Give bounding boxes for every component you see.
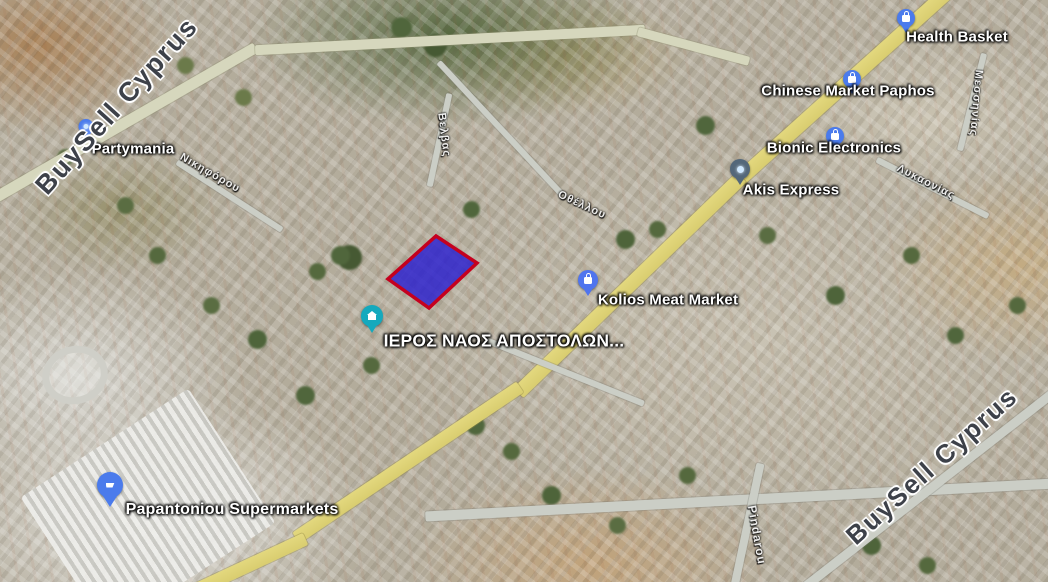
- street-label: Λυκαονίας: [895, 162, 957, 202]
- poi-label-church[interactable]: ΙΕΡΟΣ ΝΑΟΣ ΑΠΟΣΤΟΛΩΝ...: [384, 331, 625, 352]
- road: [175, 159, 283, 232]
- satellite-map[interactable]: Partymania Health Basket Chinese Market …: [0, 0, 1048, 582]
- road: [292, 382, 523, 544]
- buysell-watermark-bottom-right: BuySell Cyprus: [840, 381, 1024, 551]
- road: [637, 27, 750, 65]
- road: [176, 533, 308, 582]
- street-label: Οθέλλου: [556, 189, 608, 222]
- poi-label-akis-express[interactable]: Akis Express: [743, 182, 840, 199]
- church-icon: [361, 305, 383, 327]
- pin-dot-icon: [730, 159, 750, 179]
- partymania-pin[interactable]: [79, 119, 94, 140]
- round-structure: [36, 338, 115, 411]
- kolios-meat-market-pin[interactable]: [578, 270, 598, 296]
- poi-label-health-basket[interactable]: Health Basket: [906, 29, 1008, 46]
- road: [0, 43, 258, 213]
- road: [799, 382, 1048, 582]
- buysell-watermark-top-left: BuySell Cyprus: [29, 11, 204, 201]
- poi-label-kolios-meat-market[interactable]: Kolios Meat Market: [598, 292, 738, 309]
- shopping-bag-icon: [578, 270, 598, 290]
- street-label: Μεσσηνίας: [967, 69, 985, 137]
- road: [514, 172, 747, 397]
- street-label: Νικηφόρου: [178, 151, 242, 195]
- street-label-pindarou: Pindarou: [745, 504, 769, 566]
- poi-label-papantoniou[interactable]: Papantoniou Supermarkets: [126, 501, 339, 519]
- street-label: Βελβας: [435, 112, 452, 158]
- poi-label-bionic-electronics[interactable]: Bionic Electronics: [767, 140, 901, 157]
- road: [255, 25, 645, 55]
- tree-blobs: [0, 0, 11, 11]
- highlighted-plot: [380, 228, 490, 316]
- shopping-cart-icon: [97, 472, 123, 498]
- road: [425, 479, 1048, 522]
- road: [436, 60, 563, 196]
- supermarket-roof: [21, 388, 276, 582]
- poi-label-chinese-market[interactable]: Chinese Market Paphos: [761, 83, 934, 100]
- church-pin[interactable]: [361, 305, 383, 333]
- papantoniou-pin[interactable]: [97, 472, 123, 507]
- poi-label-partymania[interactable]: Partymania: [92, 141, 175, 158]
